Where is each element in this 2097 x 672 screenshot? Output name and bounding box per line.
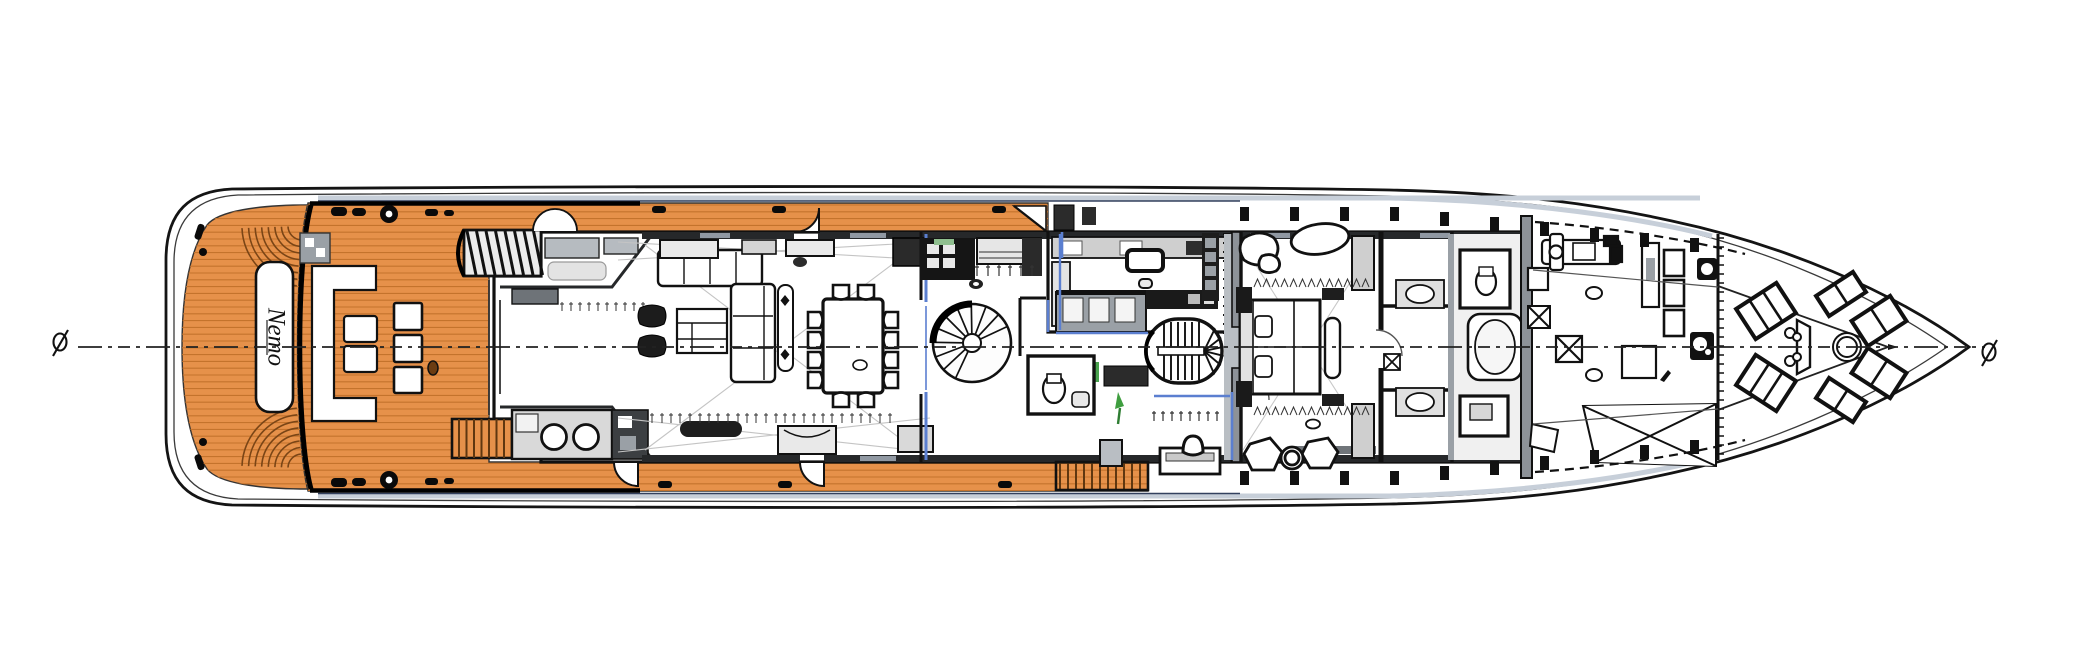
svg-text:Nemo: Nemo — [262, 307, 289, 366]
